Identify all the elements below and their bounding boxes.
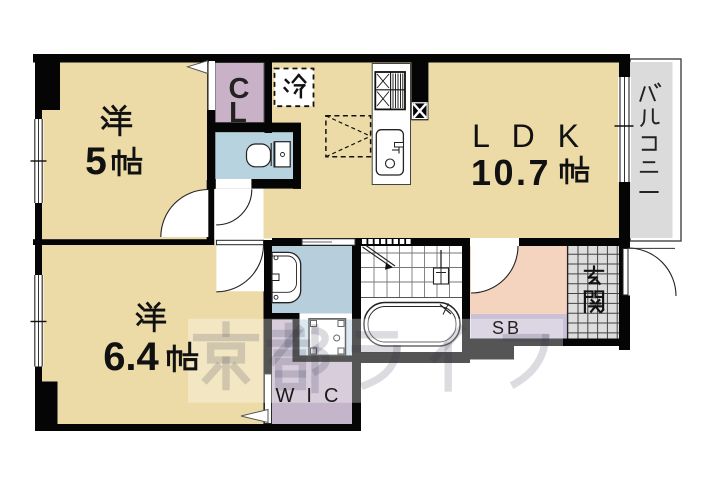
svg-text:10.7: 10.7 [471, 152, 551, 193]
svg-text:SB: SB [492, 318, 522, 338]
svg-text:WIC: WIC [276, 385, 351, 407]
svg-text:6.4: 6.4 [103, 335, 159, 379]
svg-text:L D K: L D K [472, 118, 586, 154]
svg-text:L: L [229, 97, 247, 129]
svg-text:5: 5 [85, 140, 107, 183]
